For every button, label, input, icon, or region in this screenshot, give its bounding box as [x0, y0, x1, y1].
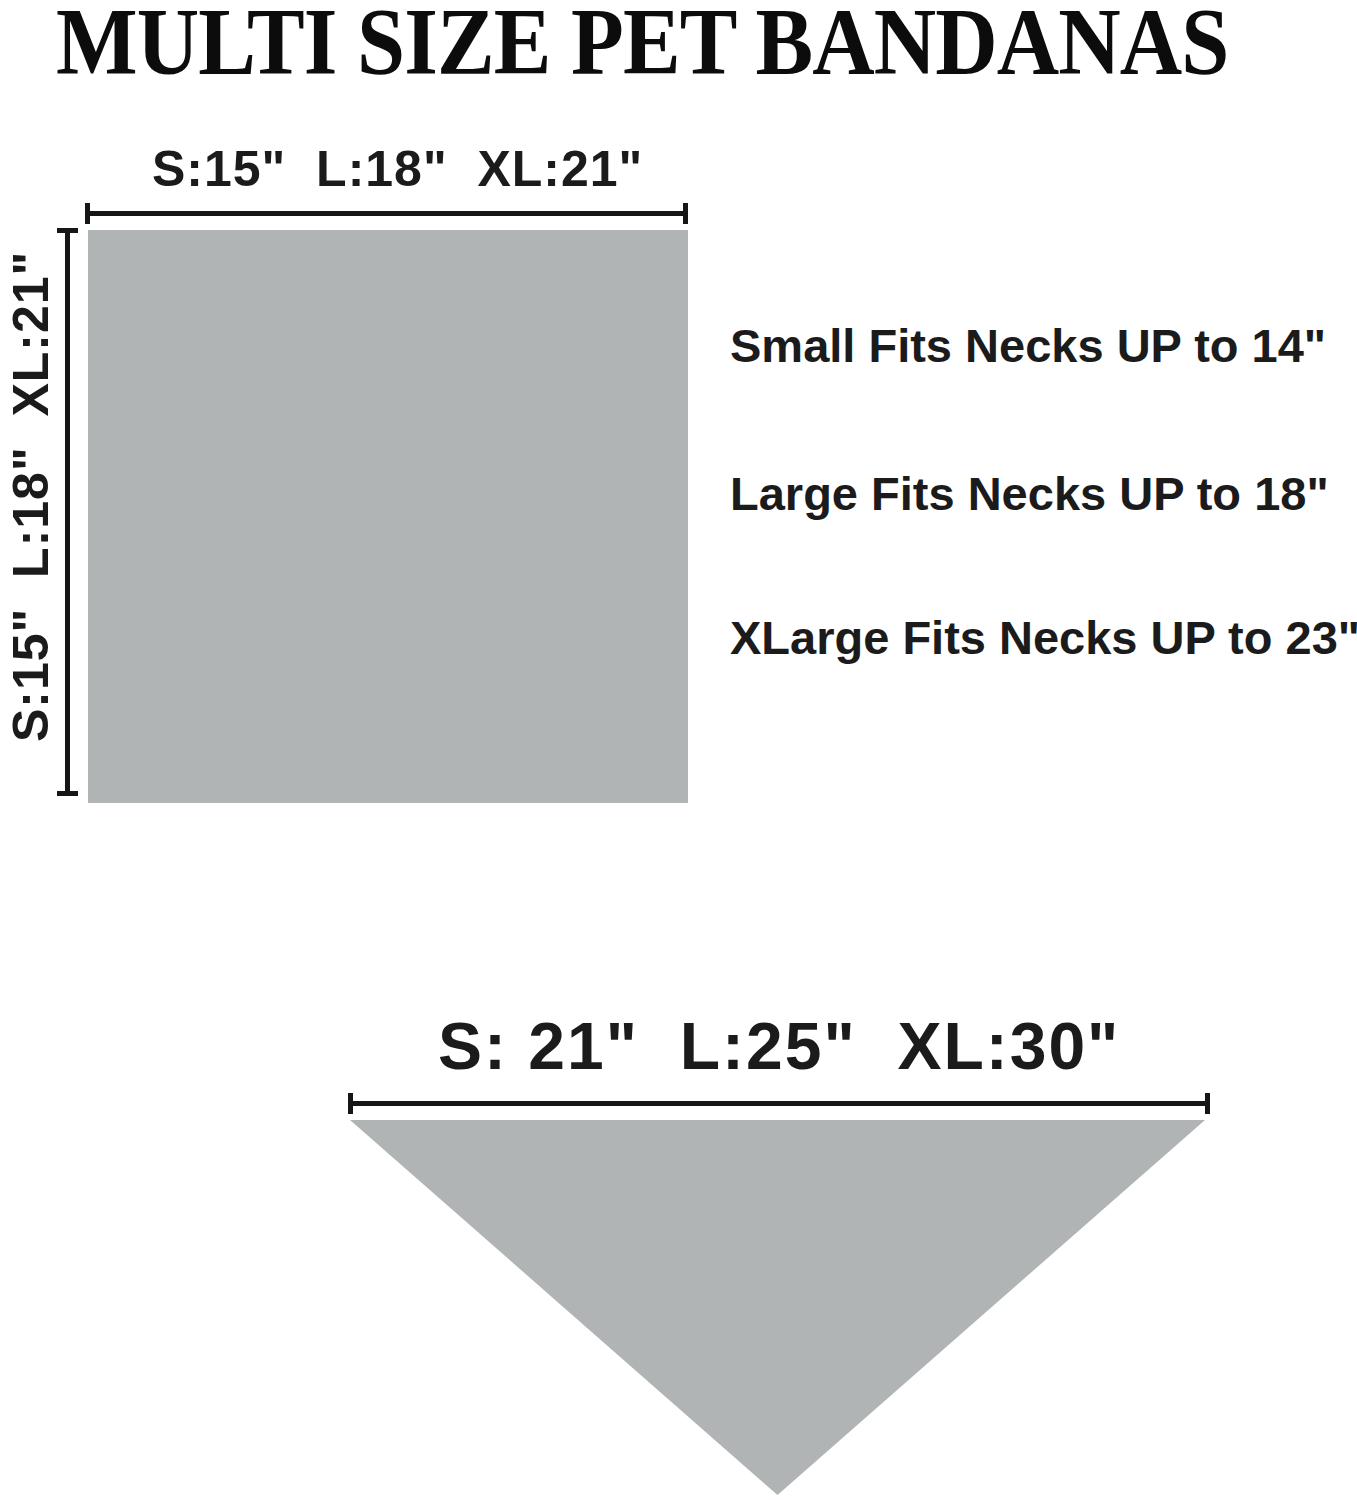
- square-height-dimension-label: S:15" L:18" XL:21": [2, 251, 60, 742]
- triangle-width-dimension-line: [348, 1101, 1210, 1106]
- triangle-width-dimension-label: S: 21" L:25" XL:30": [438, 1008, 1120, 1084]
- fit-note-large: Large Fits Necks UP to 18": [730, 466, 1329, 521]
- square-height-dimension-line: [65, 228, 70, 796]
- page-title: MULTI SIZE PET BANDANAS: [56, 0, 1228, 90]
- square-width-dimension-line: [85, 211, 688, 216]
- square-width-dimension-label: S:15" L:18" XL:21": [152, 140, 643, 198]
- triangle-bandana-shape: [350, 1120, 1205, 1495]
- size-chart-canvas: MULTI SIZE PET BANDANAS S:15" L:18" XL:2…: [0, 0, 1357, 1500]
- square-bandana-shape: [88, 230, 688, 803]
- fit-note-small: Small Fits Necks UP to 14": [730, 318, 1326, 373]
- fit-note-xlarge: XLarge Fits Necks UP to 23": [730, 610, 1357, 665]
